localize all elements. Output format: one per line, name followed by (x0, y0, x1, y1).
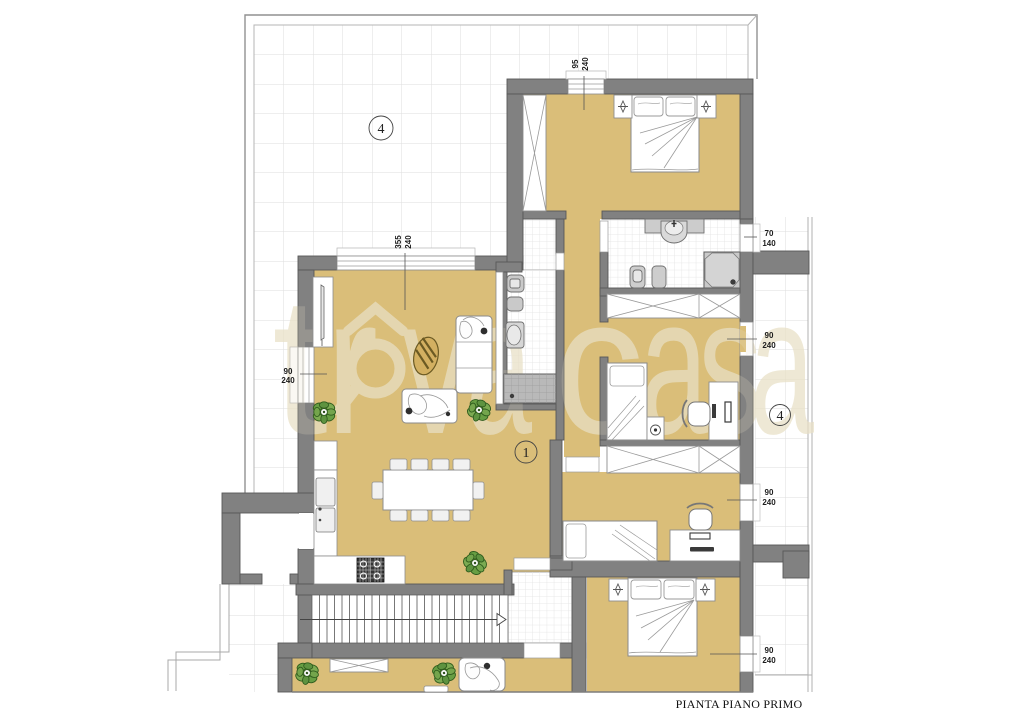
svg-text:240: 240 (762, 656, 776, 665)
svg-text:95: 95 (571, 59, 580, 68)
svg-text:140: 140 (762, 239, 776, 248)
svg-text:240: 240 (581, 57, 590, 71)
svg-text:240: 240 (404, 235, 413, 249)
svg-text:4: 4 (378, 122, 385, 137)
svg-text:90: 90 (765, 488, 774, 497)
svg-text:90: 90 (284, 367, 293, 376)
svg-text:a: a (750, 256, 814, 475)
svg-text:355: 355 (394, 235, 403, 249)
svg-text:240: 240 (281, 376, 295, 385)
svg-text:90: 90 (765, 646, 774, 655)
svg-text:4: 4 (777, 409, 784, 424)
svg-text:240: 240 (762, 498, 776, 507)
svg-text:70: 70 (765, 229, 774, 238)
svg-text:90: 90 (765, 331, 774, 340)
svg-text:240: 240 (762, 341, 776, 350)
svg-text:1: 1 (523, 446, 530, 461)
svg-text:PIANTA PIANO PRIMO: PIANTA PIANO PRIMO (676, 697, 803, 711)
